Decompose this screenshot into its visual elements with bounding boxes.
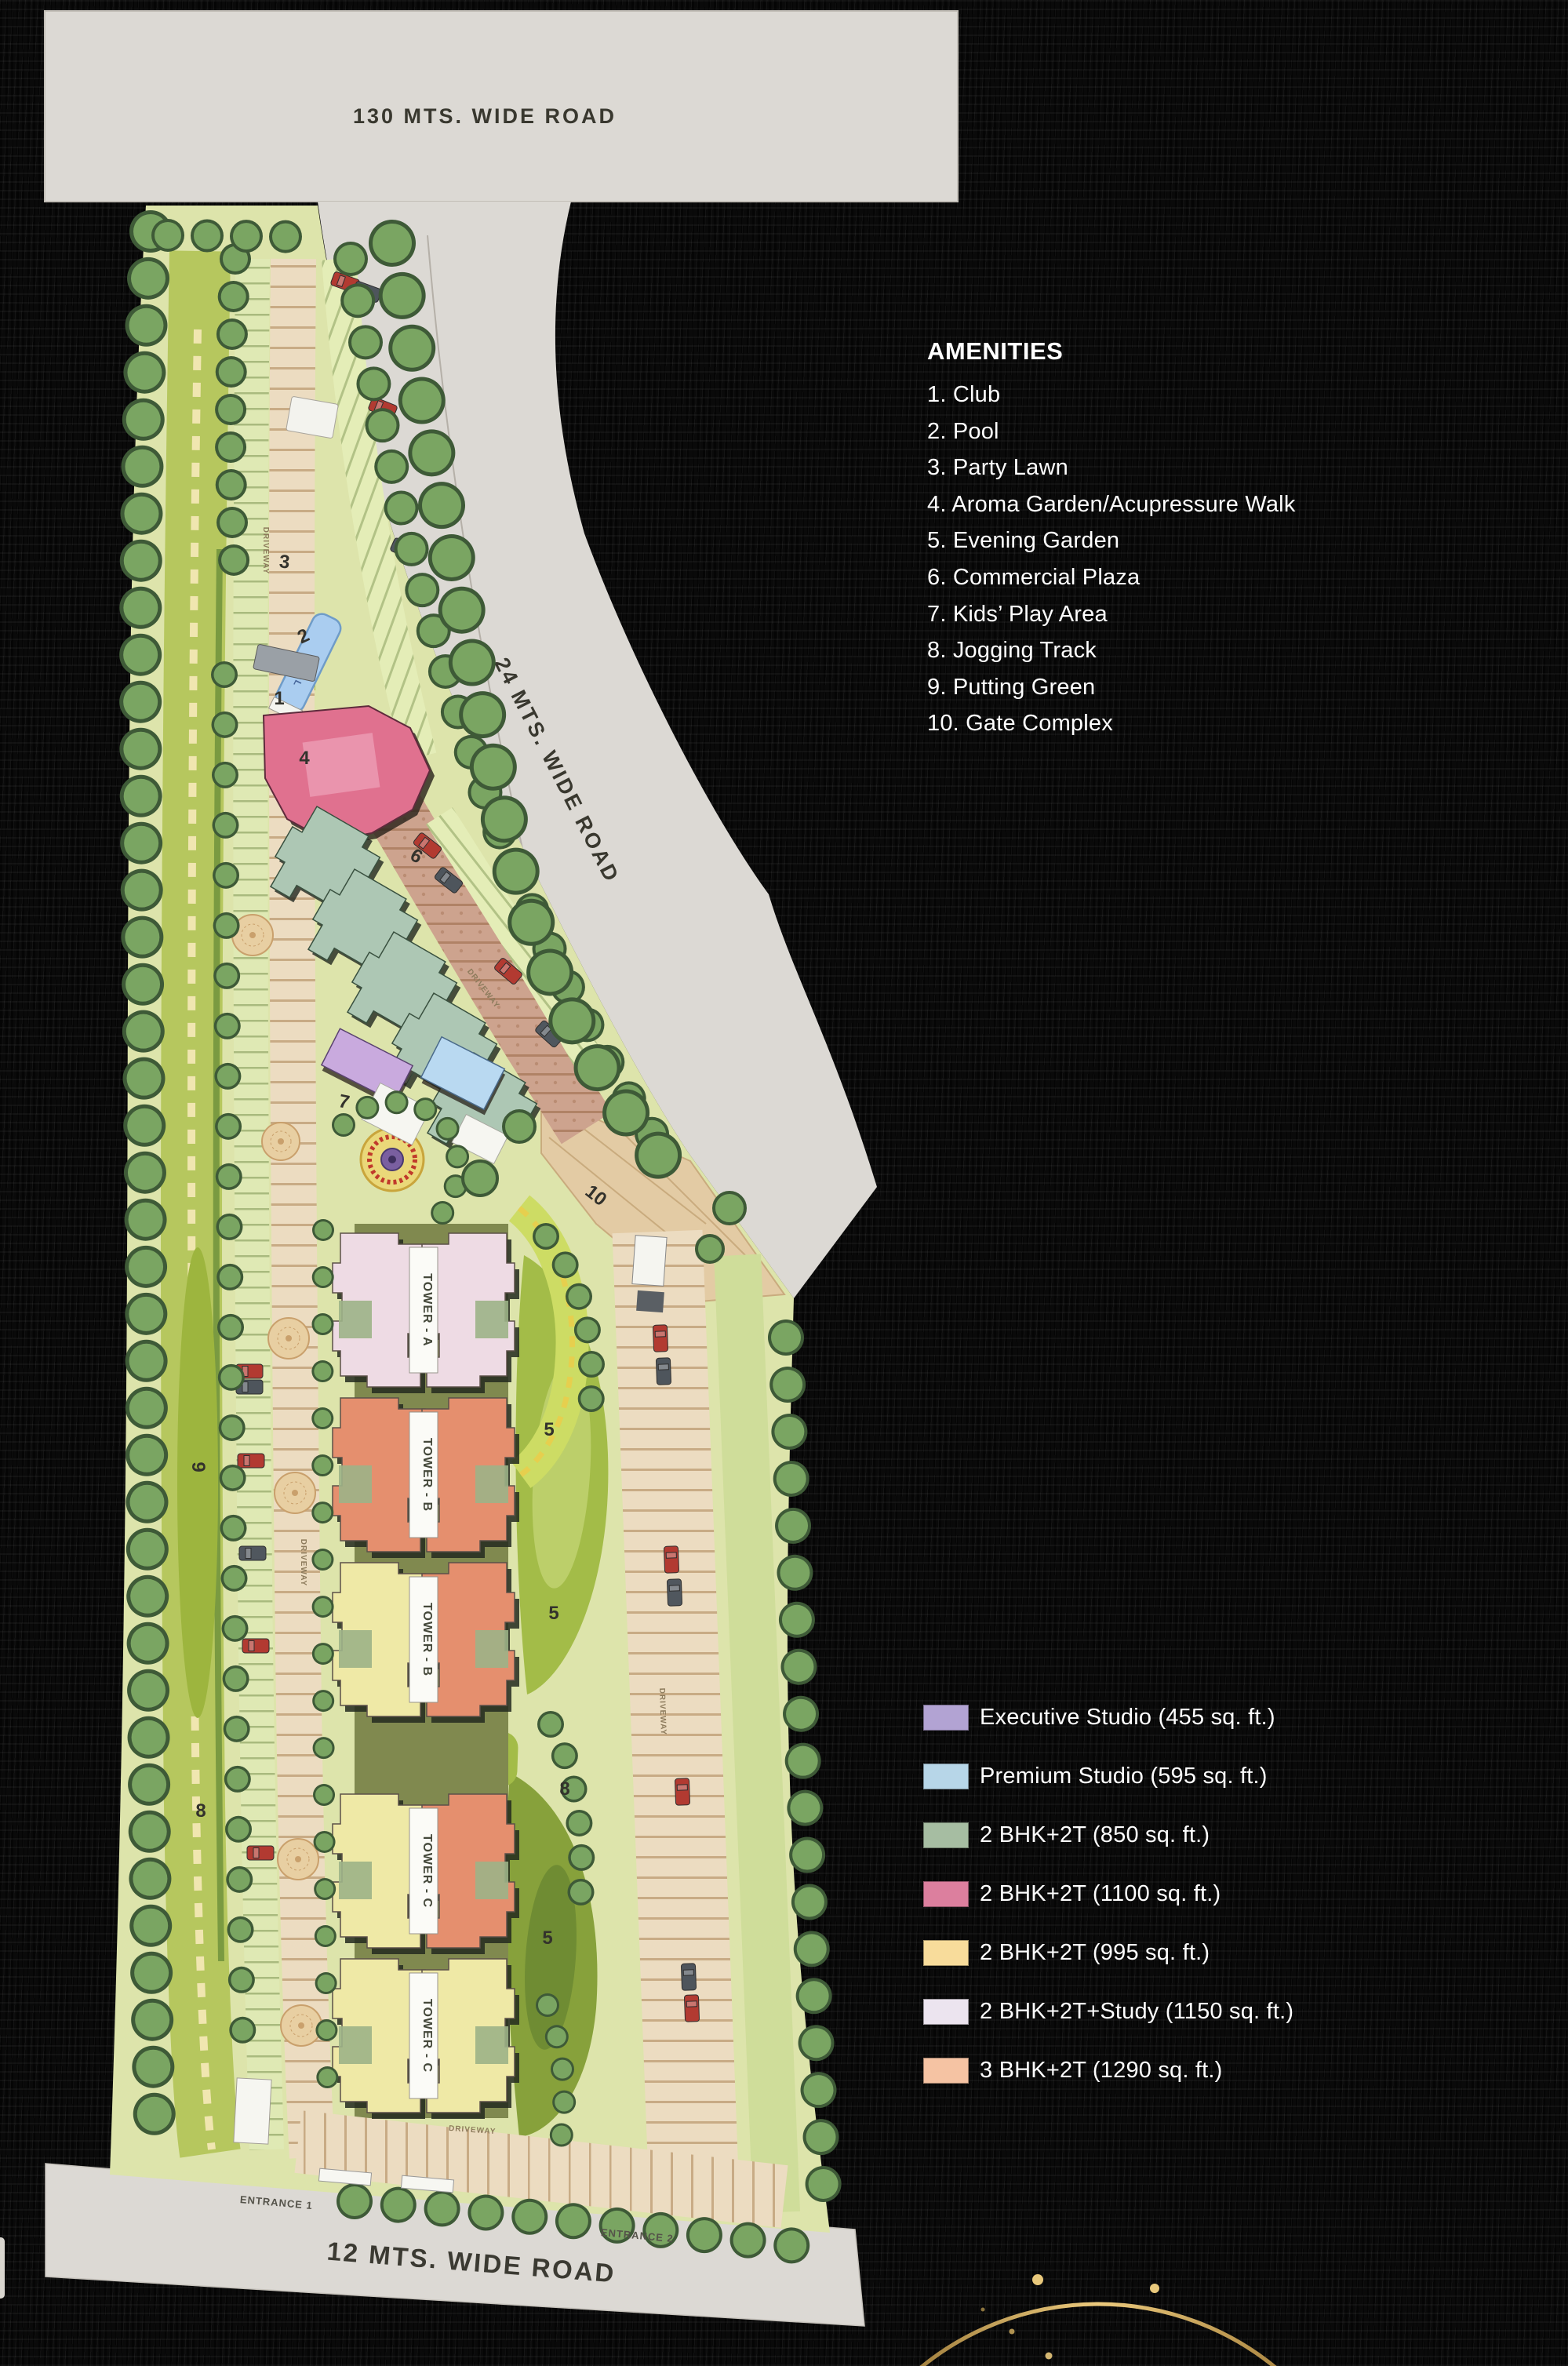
marker-evening-garden-2: 5 [548,1603,558,1624]
legend-swatch [923,1999,969,2025]
legend-swatch [923,1881,969,1907]
amenities-panel: AMENITIES 1. Club 2. Pool 3. Party Lawn … [927,337,1296,742]
gold-dot [1032,2274,1043,2285]
amenity-item: 2. Pool [927,413,1296,450]
edge-artifact [0,2237,5,2299]
legend-label: Premium Studio (595 sq. ft.) [980,1764,1268,1789]
legend-row: 2 BHK+2T (850 sq. ft.) [923,1806,1293,1865]
amenity-item: 8. Jogging Track [927,632,1296,669]
amenity-item: 3. Party Lawn [927,450,1296,486]
amenity-item: 1. Club [927,377,1296,413]
tower-c2-label: TOWER - C [420,1999,434,2073]
legend-row: Premium Studio (595 sq. ft.) [923,1747,1293,1806]
utility-block [234,2078,271,2144]
marker-evening-garden-3: 5 [542,1927,552,1949]
marker-party-lawn: 3 [278,551,291,573]
gate-building [632,1236,667,1287]
svg-text:DRIVEWAY: DRIVEWAY [299,1539,307,1586]
gold-dot [1150,2284,1159,2293]
gold-dot [1010,2329,1015,2335]
legend-row: 2 BHK+2T (995 sq. ft.) [923,1924,1293,1982]
unit-legend: Executive Studio (455 sq. ft.) Premium S… [923,1688,1293,2100]
legend-label: 3 BHK+2T (1290 sq. ft.) [980,2058,1223,2084]
legend-swatch [923,1822,969,1848]
legend-row: Executive Studio (455 sq. ft.) [923,1688,1293,1747]
club-roof [303,733,380,797]
legend-swatch [923,2058,969,2084]
tower-c1-label: TOWER - C [420,1834,434,1908]
site-plan-page: 130 MTS. WIDE ROAD 24 MTS. WIDE ROAD 12 … [0,0,1568,2366]
marker-jogging-right: 8 [559,1778,569,1800]
tower-b2-label: TOWER - B [420,1603,434,1676]
left-lawn [191,251,210,2153]
svg-text:DRIVEWAY: DRIVEWAY [261,527,270,574]
amenity-item: 6. Commercial Plaza [927,559,1296,596]
legend-row: 3 BHK+2T (1290 sq. ft.) [923,2041,1293,2100]
gold-flourish [819,2274,1377,2366]
marker-aroma-garden: 4 [299,748,310,769]
tower-a-label: TOWER - A [420,1273,434,1346]
tower-row-b2: TOWER - B [333,1563,519,1723]
legend-swatch [923,1705,969,1731]
marker-evening-garden-1: 5 [544,1419,554,1440]
legend-label: Executive Studio (455 sq. ft.) [980,1705,1275,1731]
marker-club: 1 [274,688,284,709]
legend-swatch [923,1940,969,1966]
site-plan-illustration: 130 MTS. WIDE ROAD 24 MTS. WIDE ROAD 12 … [0,0,1568,2366]
gold-dot [981,2308,985,2312]
amenity-item: 4. Aroma Garden/Acupressure Walk [927,486,1296,523]
marker-jogging-left: 8 [195,1800,206,1822]
legend-row: 2 BHK+2T+Study (1150 sq. ft.) [923,1982,1293,2041]
amenity-item: 10. Gate Complex [927,705,1296,742]
tower-b1-label: TOWER - B [420,1438,434,1512]
amenities-title: AMENITIES [927,337,1296,366]
legend-label: 2 BHK+2T (1100 sq. ft.) [980,1881,1221,1907]
gold-dot [1046,2353,1053,2360]
amenities-list: 1. Club 2. Pool 3. Party Lawn 4. Aroma G… [927,377,1296,742]
tower-row-a: TOWER - A [333,1233,519,1393]
putting-green [177,1247,218,1718]
legend-label: 2 BHK+2T (995 sq. ft.) [980,1940,1210,1966]
svg-text:DRIVEWAY: DRIVEWAY [657,1688,668,1736]
marker-putting-green: 9 [187,1461,209,1472]
legend-row: 2 BHK+2T (1100 sq. ft.) [923,1865,1293,1924]
legend-swatch [923,1764,969,1789]
legend-label: 2 BHK+2T (850 sq. ft.) [980,1822,1210,1848]
legend-label: 2 BHK+2T+Study (1150 sq. ft.) [980,1999,1293,2025]
amenity-item: 5. Evening Garden [927,522,1296,559]
tower-row-c2: TOWER - C [333,1959,519,2119]
amenity-item: 7. Kids’ Play Area [927,596,1296,633]
amenity-item: 9. Putting Green [927,669,1296,706]
top-road-label: 130 MTS. WIDE ROAD [353,104,617,128]
gate-booth [636,1290,664,1312]
tower-row-b1: TOWER - B [333,1398,519,1558]
towers: TOWER - A TOWER - B TOWER - B [333,1233,519,2119]
tower-row-c1: TOWER - C [333,1794,519,1954]
